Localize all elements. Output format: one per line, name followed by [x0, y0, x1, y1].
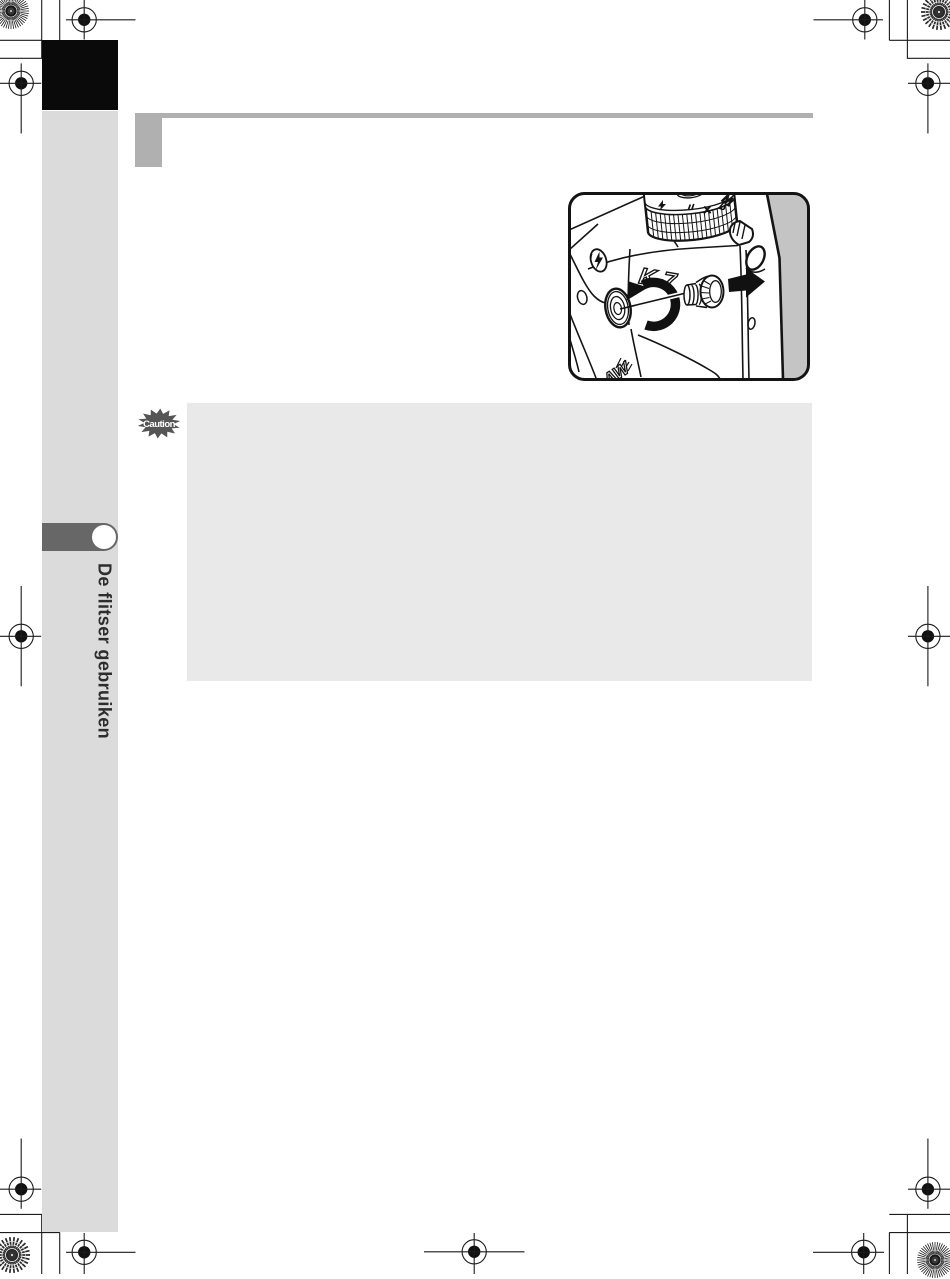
svg-text:Caution: Caution	[143, 419, 176, 430]
svg-text:AW: AW	[599, 357, 635, 381]
